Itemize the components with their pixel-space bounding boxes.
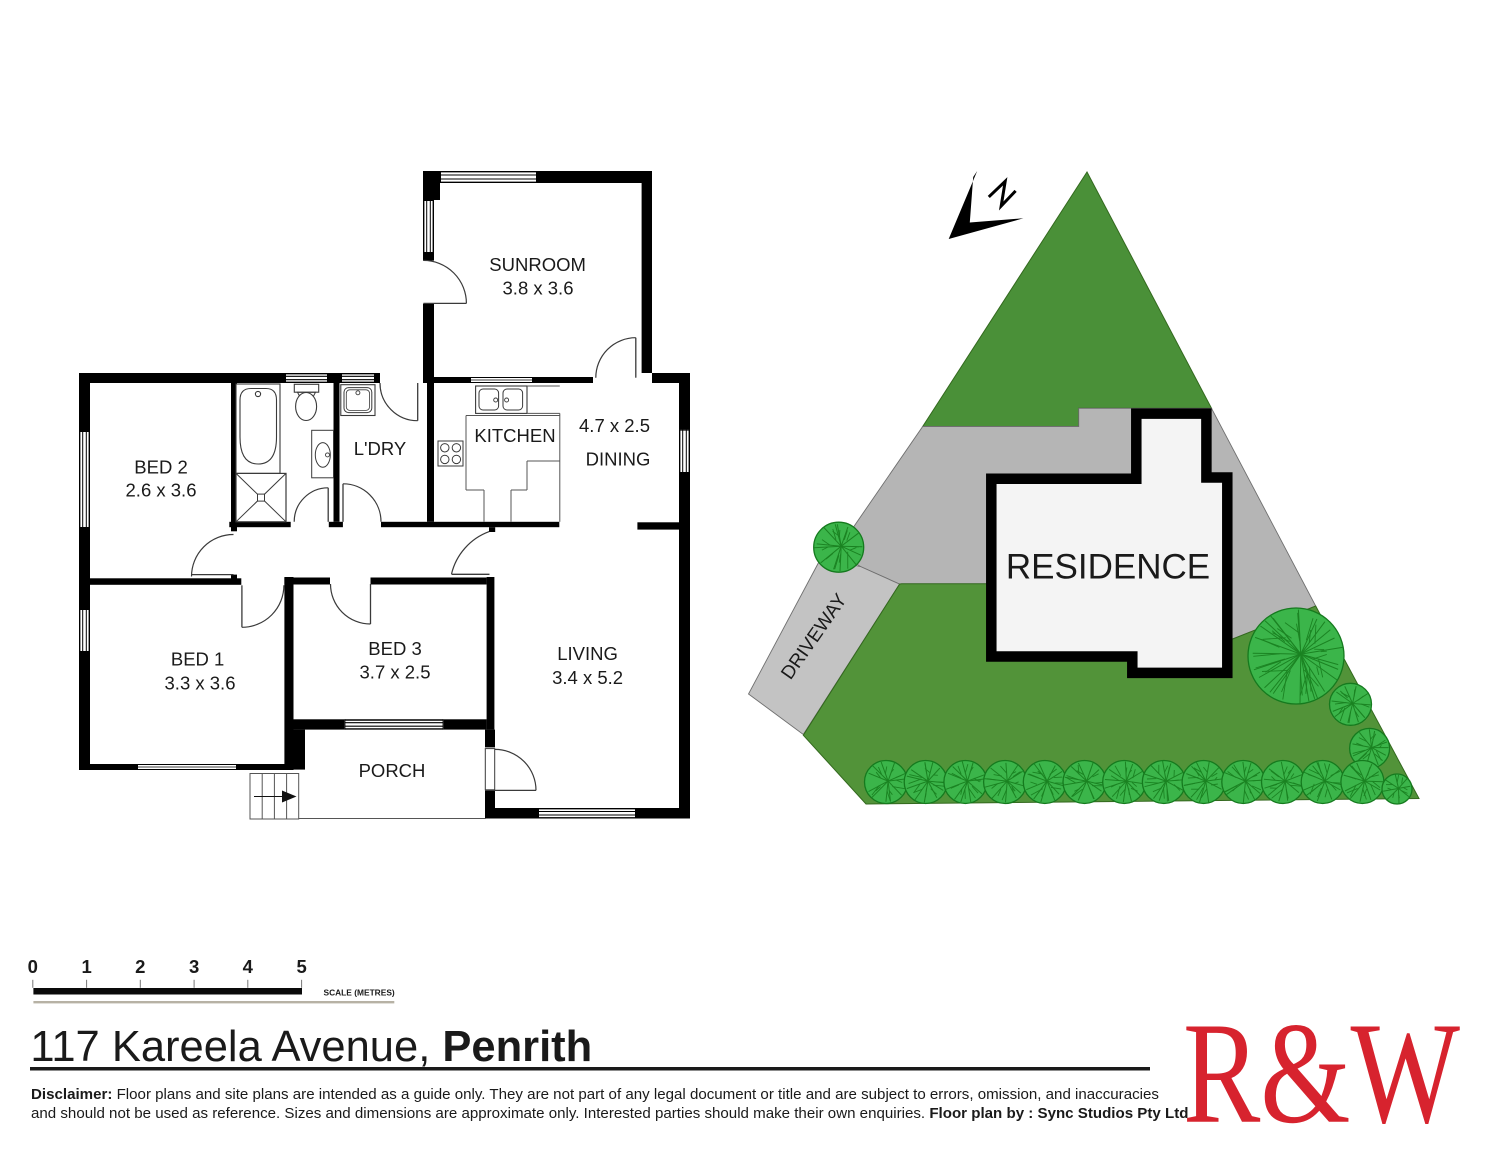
svg-text:SCALE (METRES): SCALE (METRES) (324, 988, 395, 998)
svg-text:2: 2 (135, 956, 145, 977)
svg-text:PORCH: PORCH (359, 760, 426, 781)
svg-text:0: 0 (28, 956, 38, 977)
svg-text:BED 1: BED 1 (171, 648, 224, 669)
svg-text:R&W: R&W (1183, 994, 1460, 1150)
svg-text:SUNROOM: SUNROOM (489, 254, 586, 275)
svg-text:3: 3 (189, 956, 199, 977)
svg-text:4: 4 (243, 956, 254, 977)
svg-text:RESIDENCE: RESIDENCE (1006, 547, 1210, 586)
svg-text:2.6 x 3.6: 2.6 x 3.6 (126, 480, 197, 501)
svg-text:117 Kareela Avenue, Penrith: 117 Kareela Avenue, Penrith (30, 1023, 592, 1071)
svg-text:BED 3: BED 3 (368, 638, 421, 659)
svg-text:4.7 x 2.5: 4.7 x 2.5 (579, 415, 650, 436)
svg-text:1: 1 (81, 956, 91, 977)
svg-text:3.7 x 2.5: 3.7 x 2.5 (360, 661, 431, 682)
svg-text:Disclaimer: Floor plans and si: Disclaimer: Floor plans and site plans a… (31, 1086, 1159, 1103)
svg-text:KITCHEN: KITCHEN (474, 425, 555, 446)
svg-text:3.4 x 5.2: 3.4 x 5.2 (552, 667, 623, 688)
svg-text:BED 2: BED 2 (134, 456, 187, 477)
svg-text:5: 5 (296, 956, 306, 977)
svg-text:DINING: DINING (586, 448, 651, 469)
svg-text:and should not be used as refe: and should not be used as reference. Siz… (31, 1105, 1188, 1122)
svg-text:3.3 x 3.6: 3.3 x 3.6 (165, 673, 236, 694)
svg-text:L'DRY: L'DRY (354, 438, 407, 459)
svg-text:3.8 x 3.6: 3.8 x 3.6 (503, 278, 574, 299)
svg-text:LIVING: LIVING (557, 643, 618, 664)
